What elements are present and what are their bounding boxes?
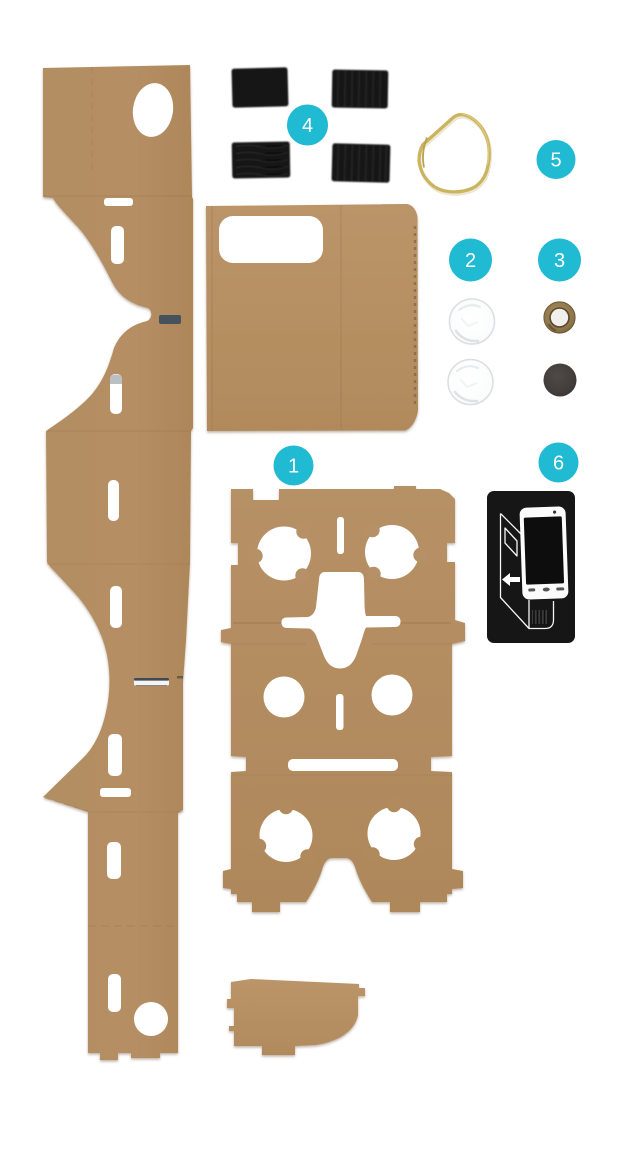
svg-text:5: 5 — [550, 150, 561, 172]
svg-text:4: 4 — [302, 115, 313, 137]
svg-text:2: 2 — [465, 250, 476, 272]
svg-text:3: 3 — [554, 250, 565, 272]
svg-text:1: 1 — [288, 456, 299, 478]
svg-text:6: 6 — [553, 453, 564, 475]
